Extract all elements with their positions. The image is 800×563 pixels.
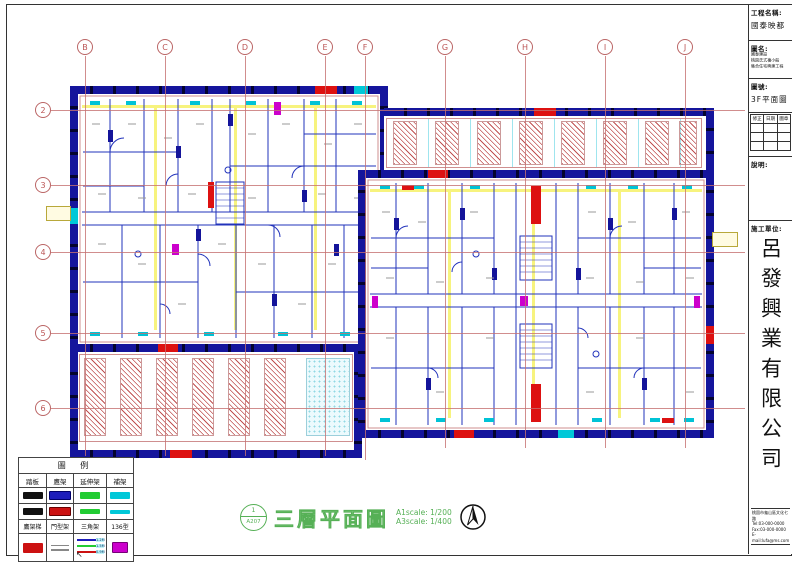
legend-label-triangle: 三角架: [73, 520, 106, 533]
grid-bubble-C: C: [157, 39, 173, 55]
left-wing-bottom-scaffold: [70, 344, 388, 352]
gridline-6: [51, 408, 745, 409]
legend-label-ladder: 鷹架梯: [19, 520, 46, 533]
rev-header-3: 圖章: [777, 115, 790, 124]
scale-a1: A1scale: 1/200: [396, 508, 452, 517]
grid-bubble-5: 5: [35, 325, 51, 341]
swatch-yanshen: [80, 492, 100, 499]
legend-label-yanshen: 延伸架: [73, 474, 106, 487]
drawing-name-line3: 集合住宅興建工程: [751, 65, 786, 70]
gridline-5: [51, 333, 745, 334]
grid-bubble-J: J: [677, 39, 693, 55]
owner-label: 業主:: [751, 545, 790, 546]
legend-label-bujia: 補架: [106, 474, 133, 487]
left-wing-floorplan: [78, 94, 380, 344]
legend-label-doorframe: 門型架: [46, 520, 73, 533]
left-hoist-box: [46, 206, 71, 221]
grid-bubble-3: 3: [35, 177, 51, 193]
rev-header-1: 修正: [751, 115, 764, 124]
legend-label-taban: 踏板: [19, 474, 46, 487]
grid-bubble-G: G: [437, 39, 453, 55]
sheet-ref-number: 1: [241, 505, 266, 517]
drawing-name-line1: 國泰建設: [751, 53, 786, 58]
sheet-ref-code: A207: [241, 517, 266, 528]
swatch-ladder: [23, 543, 43, 553]
contractor-contact: 桃園市龜山區文化七路 Tel:03-000-0000 Fax:03-000-00…: [751, 508, 790, 545]
right-wing: [358, 170, 714, 438]
grid-bubble-6: 6: [35, 400, 51, 416]
gridline-D: [245, 56, 246, 456]
grid-bubble-E: E: [317, 39, 333, 55]
notes-label: 說明:: [751, 159, 790, 169]
drawing-number-label: 圖號:: [751, 81, 790, 91]
swatch-taban: [23, 492, 43, 499]
contractor-label: 施工單位:: [751, 223, 790, 233]
swatch-yingjia: [49, 491, 71, 500]
gridline-2: [51, 110, 745, 111]
grid-bubble-F: F: [357, 39, 373, 55]
swatch-triangle: 1.2M 1.5M 0.9M ↖: [76, 537, 104, 559]
north-arrow-icon: [459, 503, 487, 531]
right-hoist-box: [712, 232, 738, 247]
terrace-area: [70, 352, 362, 458]
grid-bubble-4: 4: [35, 244, 51, 260]
gridline-3: [51, 185, 745, 186]
title-block: 工程名稱: 國泰映都 圖名: 國泰建設 桃園氏式複小般 集合住宅興建工程 圖號:…: [748, 5, 792, 554]
gridline-F: [365, 56, 366, 460]
grid-bubble-I: I: [597, 39, 613, 55]
legend-table: 圖 例 踏板 鷹架 延伸架 補架 鷹架梯 門型架 三角架 136型 1.2M 1…: [18, 457, 134, 562]
gridline-C: [165, 56, 166, 456]
gridline-E: [325, 56, 326, 456]
grid-bubble-B: B: [77, 39, 93, 55]
swatch-bujia: [110, 492, 130, 499]
left-wing: [70, 86, 388, 352]
drawing-name-line2: 桃園氏式複小般: [751, 59, 786, 64]
legend-label-yingjia: 鷹架: [46, 474, 73, 487]
revision-table: 修正 日期 圖章: [750, 114, 791, 151]
project-name: 國泰映都: [751, 20, 790, 31]
left-wing-top-scaffold: [70, 86, 388, 94]
rev-header-2: 日期: [764, 115, 777, 124]
drawing-number: 3F平面圖: [751, 94, 790, 105]
gridline-B: [85, 56, 86, 456]
swatch-doorframe: [51, 545, 69, 551]
legend-title: 圖 例: [19, 458, 133, 473]
grid-bubble-D: D: [237, 39, 253, 55]
scale-a3: A3scale: 1/400: [396, 517, 452, 526]
drawing-name-label: 圖名:: [751, 43, 790, 53]
grid-bubble-2: 2: [35, 102, 51, 118]
leader-arrow-icon: ↖: [76, 551, 83, 559]
right-wing-top-strip: [384, 108, 714, 170]
drawing-title: 三層平面圖: [274, 503, 389, 532]
gridline-4: [51, 252, 745, 253]
legend-label-136: 136型: [106, 520, 133, 533]
pool-area: [306, 358, 350, 436]
project-label: 工程名稱:: [751, 7, 790, 17]
drawing-title-bar: 1 A207 三層平面圖 A1scale: 1/200 A3scale: 1/4…: [240, 500, 487, 534]
right-wing-floorplan: [366, 178, 706, 430]
swatch-136: [112, 542, 128, 553]
grid-bubble-H: H: [517, 39, 533, 55]
contractor-name: 呂發興業有限公司: [756, 237, 786, 505]
sheet-reference-stamp: 1 A207: [240, 504, 267, 531]
